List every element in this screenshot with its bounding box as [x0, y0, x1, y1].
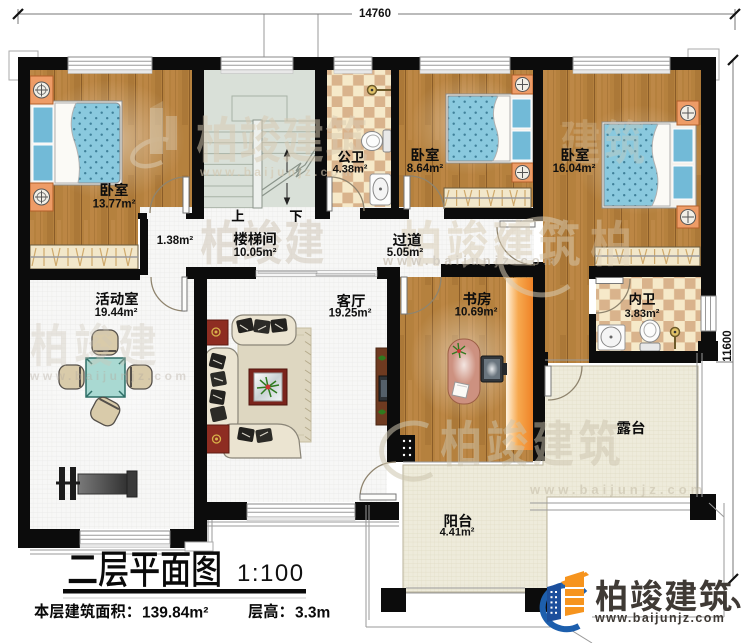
svg-text:www.baijunjz.com: www.baijunjz.com — [199, 165, 355, 179]
svg-text:10.69m²: 10.69m² — [455, 307, 498, 319]
svg-text:5.05m²: 5.05m² — [387, 247, 424, 259]
svg-text:1:100: 1:100 — [237, 560, 305, 587]
svg-text:www.baijunjz.com: www.baijunjz.com — [594, 611, 725, 625]
svg-text:19.25m²: 19.25m² — [329, 308, 372, 320]
svg-text:19.44m²: 19.44m² — [95, 307, 138, 319]
svg-text:16.04m²: 16.04m² — [553, 163, 596, 175]
svg-text:14760: 14760 — [359, 8, 391, 20]
svg-text:3.83m²: 3.83m² — [625, 308, 660, 320]
svg-text:4.38m²: 4.38m² — [333, 163, 368, 175]
svg-text:11600: 11600 — [722, 330, 734, 361]
svg-text:10.05m²: 10.05m² — [234, 247, 277, 259]
svg-text:13.77m²: 13.77m² — [93, 199, 136, 211]
svg-text:139.84m²: 139.84m² — [142, 605, 208, 622]
svg-text:4.41m²: 4.41m² — [440, 526, 475, 538]
svg-text:www.baijunjz.com: www.baijunjz.com — [29, 369, 190, 383]
svg-text:1.38m²: 1.38m² — [157, 235, 194, 247]
svg-text:8.64m²: 8.64m² — [407, 163, 444, 175]
svg-text:3.3m: 3.3m — [295, 605, 330, 622]
svg-text:www.baijunjz.com: www.baijunjz.com — [529, 482, 706, 497]
